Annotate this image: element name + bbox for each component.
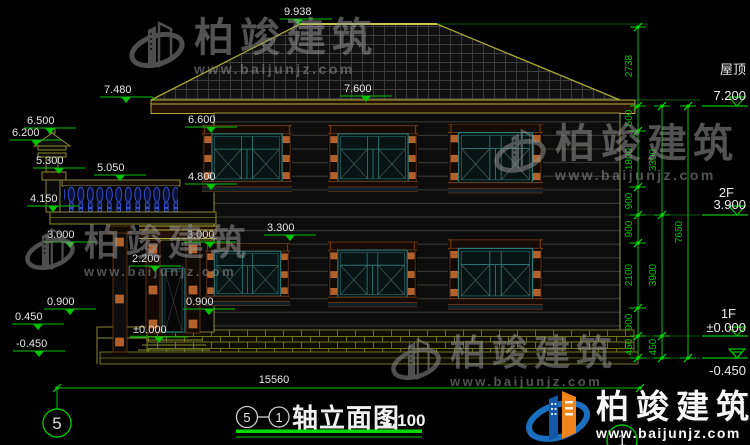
- dim-label: 3.000: [47, 229, 75, 241]
- terrace-slab: [100, 352, 638, 364]
- chain-dim: 3900: [648, 263, 659, 286]
- window-1f-right: [440, 240, 550, 310]
- dim-label: 0.900: [47, 296, 75, 308]
- brick-plinth: [147, 330, 634, 352]
- cad-elevation-screenshot: 9.938 7.480 7.600 6.500 6.200 5.300 5.05…: [0, 0, 750, 445]
- total-width-label: 15560: [259, 374, 290, 386]
- chain-dots: [637, 26, 690, 360]
- chain-dim: 450: [648, 338, 659, 355]
- elevation-drawing: 9.938 7.480 7.600 6.500 6.200 5.300 5.05…: [0, 0, 750, 445]
- level-value-roof: 7.200: [713, 88, 746, 103]
- dim-label: 4.150: [30, 193, 58, 205]
- window-2f-right: [441, 124, 551, 194]
- chain-dim: 900: [624, 313, 635, 330]
- chain-dim: 2738: [624, 54, 635, 77]
- balcony-support-column: [109, 226, 131, 352]
- title-axis-from: 5: [243, 410, 250, 425]
- right-dimension-chain: 2738 600 1800 900 900 2100 900 450 3300 …: [624, 23, 696, 362]
- hip-roof: [151, 24, 620, 100]
- balcony-slab: [50, 212, 216, 224]
- window-1f-middle: [321, 242, 424, 308]
- porch-post-right: [186, 240, 200, 333]
- chain-dim: 450: [624, 338, 635, 355]
- dim-label: 3.300: [267, 222, 295, 234]
- dim-label: 0.450: [15, 311, 43, 323]
- level-name-1f: 1F: [721, 306, 736, 321]
- brand-logo: 柏竣建筑 www.baijunjz.com: [524, 386, 750, 445]
- level-value-ground: -0.450: [709, 363, 746, 378]
- level-name-roof: 屋顶: [720, 62, 746, 77]
- dim-label: 6.600: [188, 114, 216, 126]
- chain-ticks: [634, 23, 692, 362]
- dim-label: -0.450: [16, 338, 47, 350]
- chain-dim: 3300: [648, 148, 659, 171]
- level-value-1f: ±0.000: [706, 320, 746, 335]
- dim-label: 5.050: [97, 162, 125, 174]
- right-level-markers: 屋顶 7.200 2F 3.900 1F ±0.000 -0.450: [702, 62, 748, 378]
- chain-dim: 600: [624, 109, 635, 126]
- chain-dim: 7650: [674, 220, 685, 243]
- brand-logo-text: 柏竣建筑: [596, 390, 750, 423]
- eave-cornice: [151, 100, 635, 114]
- title-axis-to: 1: [275, 410, 282, 425]
- axis-bubble-5-label: 5: [52, 414, 61, 433]
- balcony-balustrade: [50, 180, 216, 224]
- dim-label: 9.938: [284, 6, 312, 18]
- dim-label: 6.500: [27, 115, 55, 127]
- chain-dim: 2100: [624, 263, 635, 286]
- dim-label: 7.600: [344, 83, 372, 95]
- dim-label: 3.000: [187, 229, 215, 241]
- dim-label: 4.800: [188, 171, 216, 183]
- chain-dim: 900: [624, 192, 635, 209]
- dim-label: 0.900: [186, 296, 214, 308]
- title-block: 5 1 轴立面图 1:100: [236, 403, 425, 437]
- balustrade-top-rail: [62, 180, 180, 186]
- brand-logo-url: www.baijunjz.com: [596, 425, 750, 441]
- dim-label: 5.300: [36, 155, 64, 167]
- window-2f-middle: [321, 126, 425, 193]
- dim-label: 7.480: [104, 84, 132, 96]
- title-underline: [236, 430, 422, 434]
- brand-logo-icon: [524, 386, 592, 445]
- dim-label: ±0.000: [133, 324, 167, 336]
- balusters: [64, 186, 178, 212]
- chain-dim: 900: [624, 220, 635, 237]
- drawing-scale: 1:100: [382, 411, 425, 430]
- dim-label: 2.200: [132, 253, 160, 265]
- dim-label: 6.200: [12, 127, 40, 139]
- chain-dim: 1800: [624, 147, 635, 170]
- level-value-2f: 3.900: [713, 197, 746, 212]
